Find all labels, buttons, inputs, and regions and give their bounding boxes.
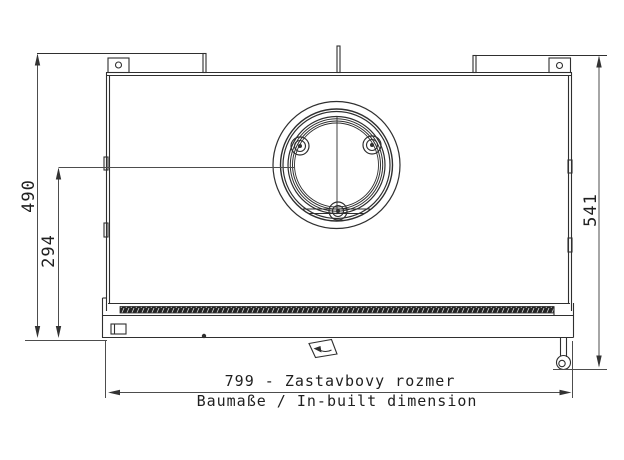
flue-outlet bbox=[273, 102, 400, 229]
dim-541-label: 541 bbox=[581, 193, 601, 227]
bracket-hole-right bbox=[557, 63, 563, 69]
top-rail bbox=[37, 46, 607, 73]
drawing-canvas: 490 294 541 799 - Zastavbovy rozmer Baum… bbox=[0, 0, 624, 460]
dim-799-sublabel: Baumaße / In-built dimension bbox=[197, 392, 478, 410]
dim-294-label: 294 bbox=[39, 234, 59, 268]
direction-wedge bbox=[309, 340, 337, 358]
mounting-bracket-right bbox=[549, 58, 571, 73]
technical-drawing bbox=[0, 0, 624, 460]
bracket-hole-left bbox=[116, 62, 122, 68]
mounting-bracket-left bbox=[108, 58, 129, 73]
dim-799-label: 799 - Zastavbovy rozmer bbox=[225, 372, 456, 390]
dim-490-label: 490 bbox=[19, 179, 39, 213]
base-assembly bbox=[102, 298, 574, 370]
leveling-foot bbox=[557, 338, 571, 370]
body-outline bbox=[104, 73, 572, 312]
pivot-dot bbox=[202, 334, 206, 338]
bottom-clip bbox=[111, 324, 126, 334]
front-rail-hatch bbox=[120, 307, 554, 314]
